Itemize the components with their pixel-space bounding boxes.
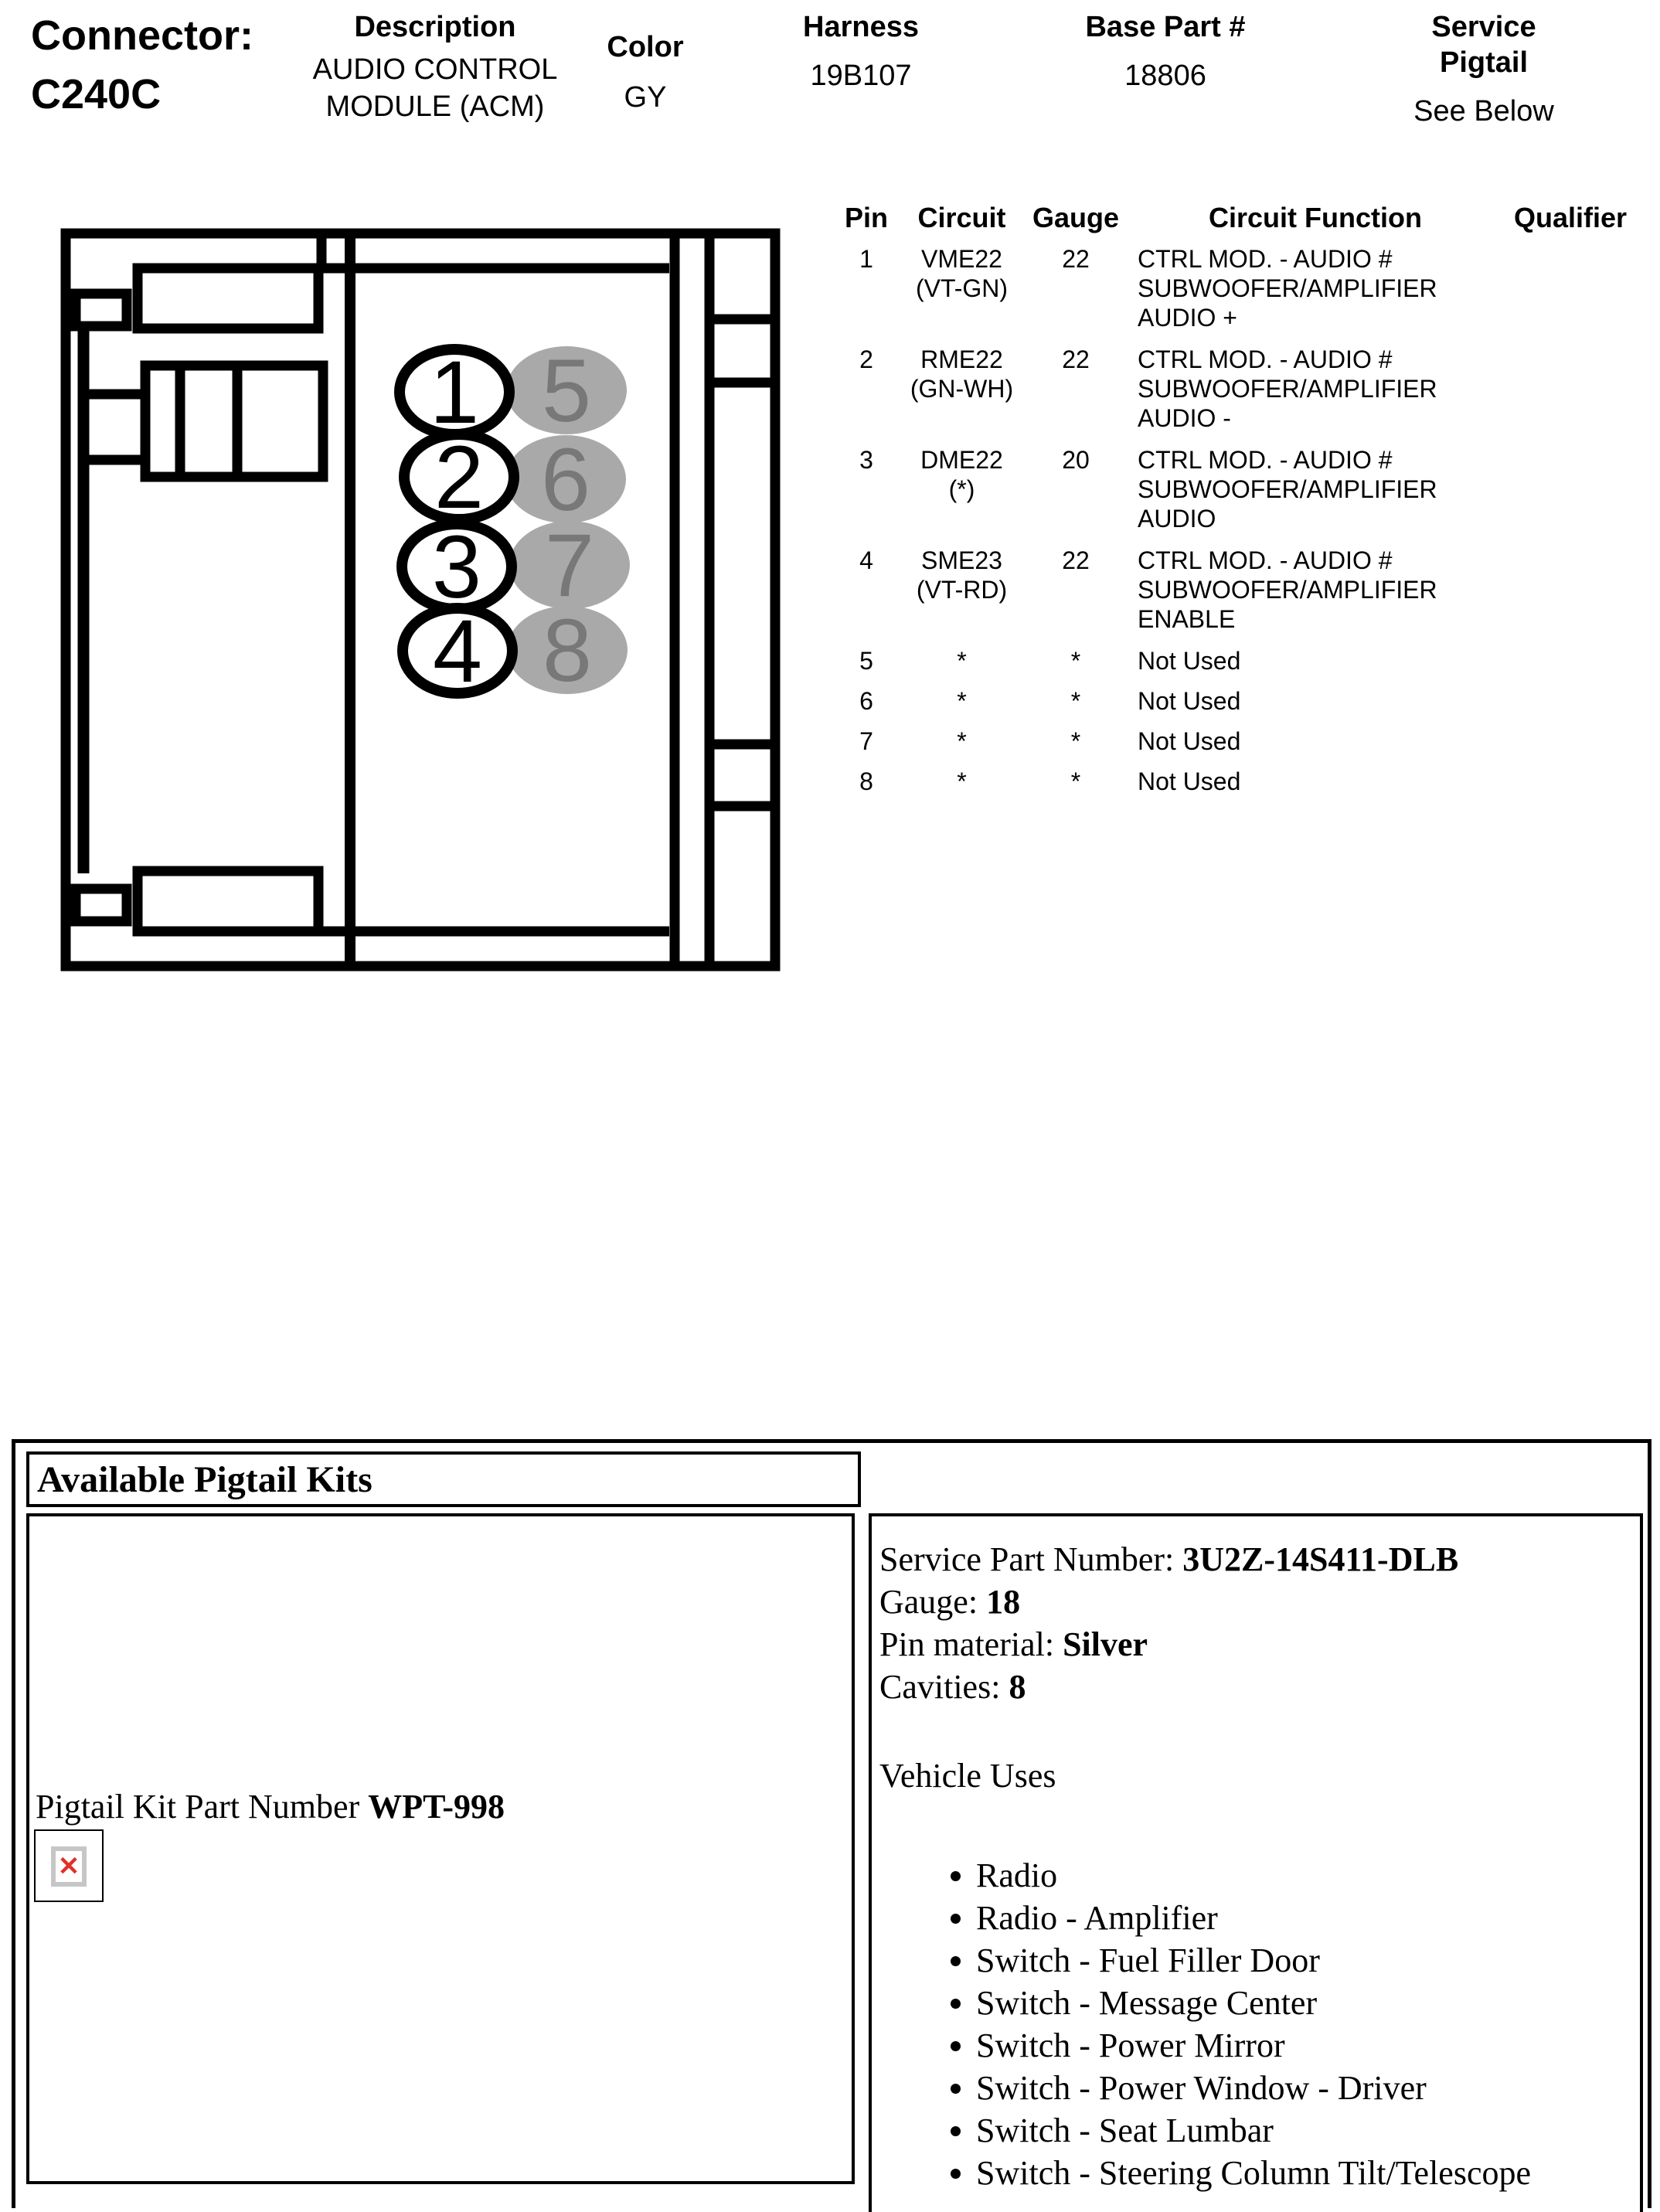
service-pigtail-value: See Below [1396, 93, 1572, 130]
cavities-label: Cavities: [879, 1668, 1000, 1706]
cavities-line: Cavities: 8 [879, 1666, 1632, 1708]
circuit-function: CTRL MOD. - AUDIO # SUBWOOFER/AMPLIFIER … [1138, 244, 1493, 332]
cavity-4-number: 4 [433, 602, 482, 701]
vehicle-use-item: Radio [976, 1855, 1632, 1897]
pigtail-kit-label: Pigtail Kit Part Number [36, 1788, 359, 1826]
header-field-service-pigtail: Service Pigtail See Below [1396, 9, 1572, 130]
pigtail-kit-cell: Pigtail Kit Part Number WPT-998 ✕ [26, 1513, 855, 2184]
pin-column-header: Pin [823, 202, 910, 233]
qualifier-column-header: Qualifier [1493, 202, 1648, 233]
wire-gauge: * [1014, 727, 1138, 756]
service-part-number-line: Service Part Number: 3U2Z-14S411-DLB [879, 1538, 1632, 1581]
lower-left-step [76, 889, 127, 921]
description-value: AUDIO CONTROL MODULE (ACM) [313, 51, 558, 125]
connector-title: Connector: C240C [31, 6, 253, 124]
pin-number: 5 [823, 646, 910, 676]
wire-gauge: 22 [1014, 244, 1138, 274]
wire-gauge: 22 [1014, 345, 1138, 374]
vehicle-use-item: Switch - Power Mirror [976, 2025, 1632, 2067]
circuit-function: Not Used [1138, 686, 1493, 716]
wire-gauge: * [1014, 646, 1138, 676]
circuit-id: RME22 (GN-WH) [910, 345, 1014, 403]
pin-row-8: 8 * * Not Used [823, 767, 1650, 796]
connector-spec-page: { "header": { "connector_label": "Connec… [0, 0, 1660, 2201]
vehicle-use-item: Switch - Seat Lumbar [976, 2110, 1632, 2152]
wire-gauge: 22 [1014, 546, 1138, 575]
connector-drawing: 1 2 3 4 5 6 7 8 [60, 228, 781, 972]
harness-value: 19B107 [803, 57, 919, 94]
pin-table-header-row: Pin Circuit Gauge Circuit Function Quali… [823, 202, 1650, 233]
pin-number: 4 [823, 546, 910, 575]
service-pigtail-label: Service Pigtail [1396, 9, 1572, 80]
cavity-2-number: 2 [434, 428, 484, 527]
pigtail-kit-part-number-line: Pigtail Kit Part Number WPT-998 [36, 1787, 505, 1826]
cavity-1-number: 1 [430, 343, 479, 442]
vehicle-use-item: Radio - Amplifier [976, 1897, 1632, 1939]
circuit-function: CTRL MOD. - AUDIO # SUBWOOFER/AMPLIFIER … [1138, 345, 1493, 433]
circuit-function: Not Used [1138, 727, 1493, 756]
base-part-value: 18806 [1085, 57, 1245, 94]
pin-number: 8 [823, 767, 910, 796]
cavity-7-number: 7 [545, 516, 594, 615]
pin-row-6: 6 * * Not Used [823, 686, 1650, 716]
wire-gauge: * [1014, 767, 1138, 796]
color-label: Color [607, 29, 683, 65]
color-value: GY [607, 79, 683, 116]
circuit-function: Not Used [1138, 767, 1493, 796]
header-field-base-part: Base Part # 18806 [1085, 9, 1245, 94]
header-field-description: Description AUDIO CONTROL MODULE (ACM) [313, 9, 558, 125]
upper-left-step [76, 294, 127, 326]
circuit-id: * [910, 767, 1014, 796]
gauge-column-header: Gauge [1014, 202, 1138, 233]
wire-gauge: * [1014, 686, 1138, 716]
pin-row-7: 7 * * Not Used [823, 727, 1650, 756]
pin-number: 6 [823, 686, 910, 716]
broken-image-icon: ✕ [51, 1846, 87, 1887]
circuit-id: VME22 (VT-GN) [910, 244, 1014, 303]
pin-number: 2 [823, 345, 910, 374]
lower-latch-tab [138, 871, 318, 931]
circuit-id: * [910, 646, 1014, 676]
cavity-8-number: 8 [543, 601, 592, 700]
vehicle-use-item: Switch - Message Center [976, 1982, 1632, 2024]
service-part-label: Service Part Number: [879, 1540, 1174, 1578]
base-part-label: Base Part # [1085, 9, 1245, 45]
gauge-label: Gauge: [879, 1583, 978, 1621]
pin-table: Pin Circuit Gauge Circuit Function Quali… [823, 202, 1650, 807]
gauge-line: Gauge: 18 [879, 1581, 1632, 1623]
description-label: Description [313, 9, 558, 45]
pin-row-5: 5 * * Not Used [823, 646, 1650, 676]
vehicle-use-item: Switch - Power Window - Driver [976, 2067, 1632, 2109]
circuit-id: SME23 (VT-RD) [910, 546, 1014, 604]
vehicle-use-item: Switch - Steering Column Tilt/Telescope [976, 2152, 1632, 2194]
pigtail-kits-title: Available Pigtail Kits [37, 1458, 372, 1501]
pin-material-label: Pin material: [879, 1625, 1054, 1663]
vehicle-uses-list: Radio Radio - Amplifier Switch - Fuel Fi… [879, 1855, 1632, 2194]
pigtail-kits-title-cell: Available Pigtail Kits [26, 1451, 861, 1507]
pin-material-value: Silver [1063, 1625, 1148, 1663]
circuit-column-header: Circuit [910, 202, 1014, 233]
pin-number: 7 [823, 727, 910, 756]
pin-number: 1 [823, 244, 910, 274]
pin-number: 3 [823, 445, 910, 475]
circuit-id: * [910, 686, 1014, 716]
pigtail-kit-number: WPT-998 [368, 1788, 505, 1826]
circuit-function: CTRL MOD. - AUDIO # SUBWOOFER/AMPLIFIER … [1138, 445, 1493, 533]
pin-row-3: 3 DME22 (*) 20 CTRL MOD. - AUDIO # SUBWO… [823, 445, 1650, 533]
cavity-6-number: 6 [541, 430, 590, 529]
gauge-value: 18 [986, 1583, 1020, 1621]
header-field-color: Color GY [607, 29, 683, 116]
cavity-5-number: 5 [542, 342, 591, 441]
vehicle-uses-heading: Vehicle Uses [879, 1754, 1632, 1797]
pin-row-1: 1 VME22 (VT-GN) 22 CTRL MOD. - AUDIO # S… [823, 244, 1650, 332]
kit-image-placeholder: ✕ [34, 1829, 104, 1902]
cavities-value: 8 [1009, 1668, 1026, 1706]
wire-gauge: 20 [1014, 445, 1138, 475]
service-part-cell: Service Part Number: 3U2Z-14S411-DLB Gau… [869, 1513, 1643, 2212]
pin-row-4: 4 SME23 (VT-RD) 22 CTRL MOD. - AUDIO # S… [823, 546, 1650, 634]
connector-face-diagram: 1 2 3 4 5 6 7 8 [60, 228, 781, 972]
circuit-function: Not Used [1138, 646, 1493, 676]
pin-row-2: 2 RME22 (GN-WH) 22 CTRL MOD. - AUDIO # S… [823, 345, 1650, 433]
harness-label: Harness [803, 9, 919, 45]
connector-id: C240C [31, 65, 253, 124]
service-part-value: 3U2Z-14S411-DLB [1182, 1540, 1458, 1578]
circuit-id: DME22 (*) [910, 445, 1014, 504]
upper-latch-tab [138, 268, 318, 328]
broken-image-x-glyph: ✕ [58, 1853, 80, 1880]
vehicle-use-item: Switch - Fuel Filler Door [976, 1940, 1632, 1982]
pin-material-line: Pin material: Silver [879, 1623, 1632, 1666]
connector-label: Connector: [31, 6, 253, 65]
circuit-id: * [910, 727, 1014, 756]
header-field-harness: Harness 19B107 [803, 9, 919, 94]
function-column-header: Circuit Function [1138, 202, 1493, 233]
circuit-function: CTRL MOD. - AUDIO # SUBWOOFER/AMPLIFIER … [1138, 546, 1493, 634]
